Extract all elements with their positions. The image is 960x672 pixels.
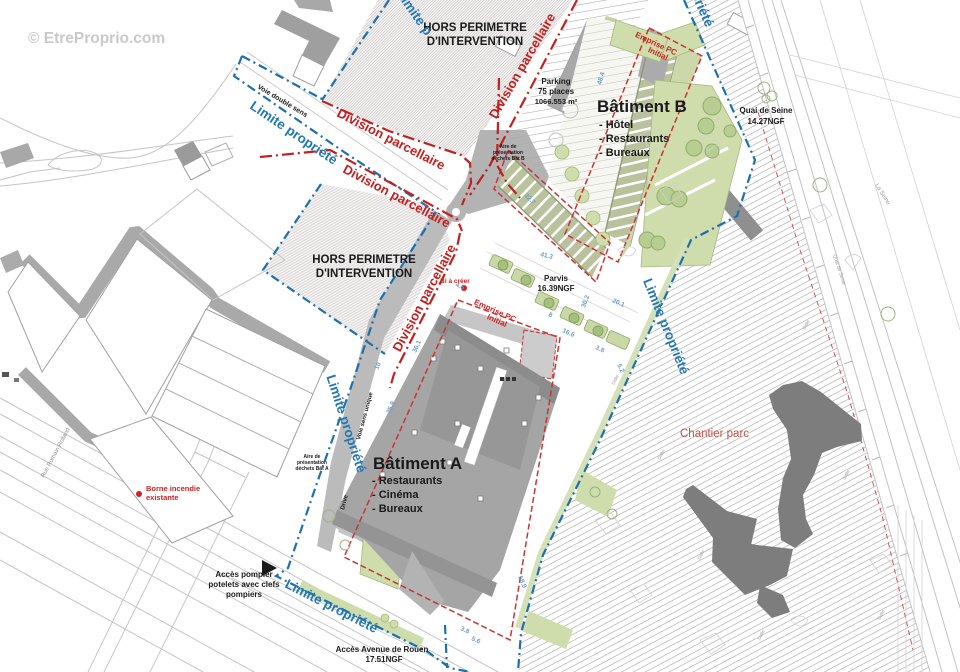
svg-text:- Bureaux: - Bureaux <box>599 147 651 159</box>
svg-text:- Restaurants: - Restaurants <box>599 133 669 145</box>
svg-text:75 places: 75 places <box>538 87 575 96</box>
svg-text:14.27NGF: 14.27NGF <box>748 117 785 126</box>
svg-text:HORS PERIMETRE: HORS PERIMETRE <box>423 22 527 34</box>
svg-text:existante: existante <box>146 493 179 502</box>
svg-text:1066.553 m²: 1066.553 m² <box>535 97 578 106</box>
svg-text:© EtreProprio.com: © EtreProprio.com <box>28 30 165 47</box>
svg-text:D'INTERVENTION: D'INTERVENTION <box>316 268 412 280</box>
svg-text:pompiers: pompiers <box>226 590 263 599</box>
svg-text:- Bureaux: - Bureaux <box>372 503 424 515</box>
svg-text:Bâtiment B: Bâtiment B <box>597 97 687 116</box>
svg-text:Bâtiment A: Bâtiment A <box>373 454 462 473</box>
svg-text:Borne incendie: Borne incendie <box>146 484 200 493</box>
svg-text:Chantier parc: Chantier parc <box>680 428 749 440</box>
svg-text:potelets avec clefs: potelets avec clefs <box>208 580 280 589</box>
svg-text:Accès Avenue de Rouen: Accès Avenue de Rouen <box>336 645 429 654</box>
svg-text:déchets Bât A: déchets Bât A <box>295 466 329 472</box>
svg-text:D'INTERVENTION: D'INTERVENTION <box>427 36 523 48</box>
svg-text:Parvis: Parvis <box>544 274 569 283</box>
svg-text:16.39NGF: 16.39NGF <box>538 284 575 293</box>
svg-text:- Hôtel: - Hôtel <box>599 119 633 131</box>
svg-text:- Restaurants: - Restaurants <box>372 475 442 487</box>
svg-text:HORS PERIMETRE: HORS PERIMETRE <box>312 254 416 266</box>
svg-text:- Cinéma: - Cinéma <box>372 489 419 501</box>
svg-text:Parking: Parking <box>541 77 570 86</box>
svg-text:17.51NGF: 17.51NGF <box>366 655 403 664</box>
svg-text:déchets Bât B: déchets Bât B <box>491 156 525 162</box>
svg-text:Quai de Seine: Quai de Seine <box>740 106 793 115</box>
